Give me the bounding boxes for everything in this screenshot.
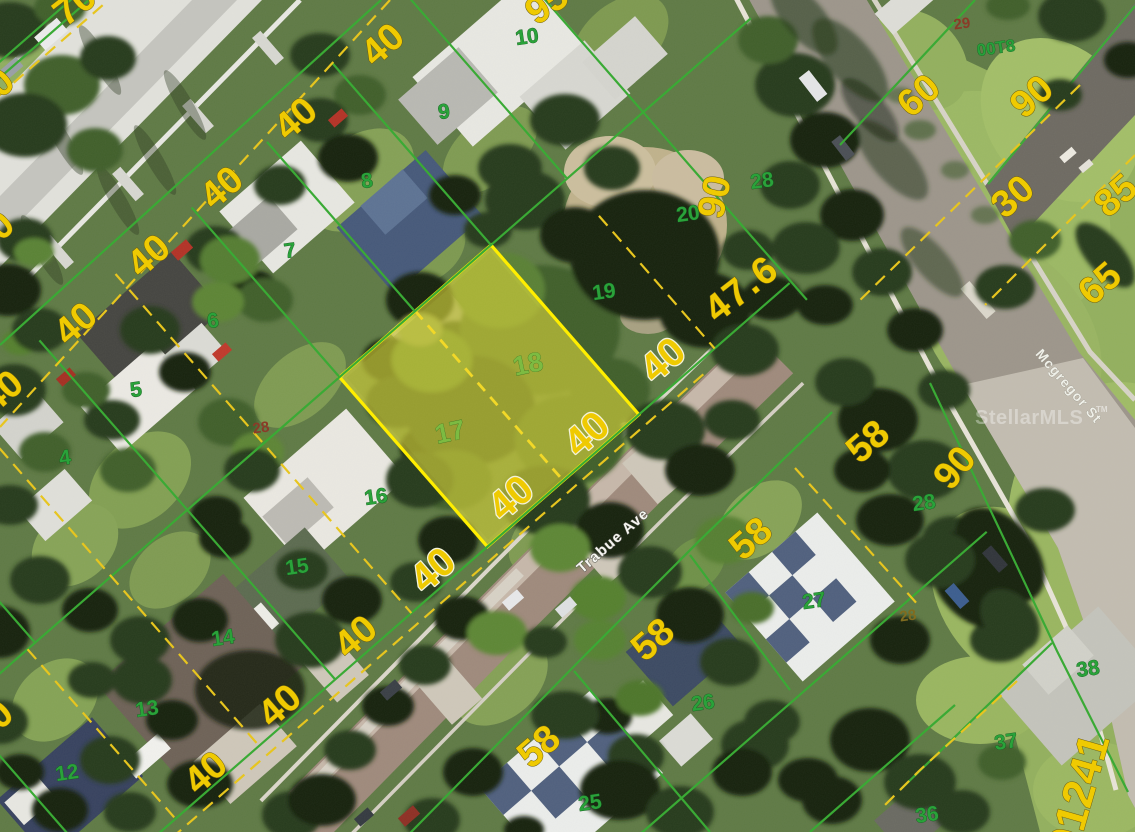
- svg-text:16: 16: [363, 484, 389, 510]
- svg-text:27: 27: [801, 588, 827, 614]
- svg-text:TM: TM: [1096, 405, 1108, 414]
- svg-text:38: 38: [1075, 656, 1102, 682]
- svg-text:29: 29: [953, 14, 972, 33]
- svg-text:28: 28: [911, 490, 938, 516]
- svg-text:36: 36: [914, 802, 940, 828]
- svg-text:17: 17: [432, 414, 468, 450]
- svg-text:28: 28: [749, 168, 776, 194]
- svg-text:20: 20: [675, 201, 701, 227]
- svg-text:12: 12: [54, 760, 80, 786]
- svg-text:StellarMLS: StellarMLS: [975, 407, 1083, 429]
- svg-text:14: 14: [210, 625, 237, 651]
- svg-text:37: 37: [993, 729, 1019, 755]
- svg-text:25: 25: [577, 790, 604, 816]
- svg-text:26: 26: [690, 690, 716, 716]
- svg-text:13: 13: [134, 696, 160, 722]
- svg-text:19: 19: [591, 279, 617, 305]
- svg-text:15: 15: [284, 554, 311, 580]
- svg-text:18: 18: [510, 346, 546, 382]
- svg-text:28: 28: [899, 606, 918, 625]
- svg-text:28: 28: [252, 418, 271, 437]
- svg-text:10: 10: [514, 24, 540, 50]
